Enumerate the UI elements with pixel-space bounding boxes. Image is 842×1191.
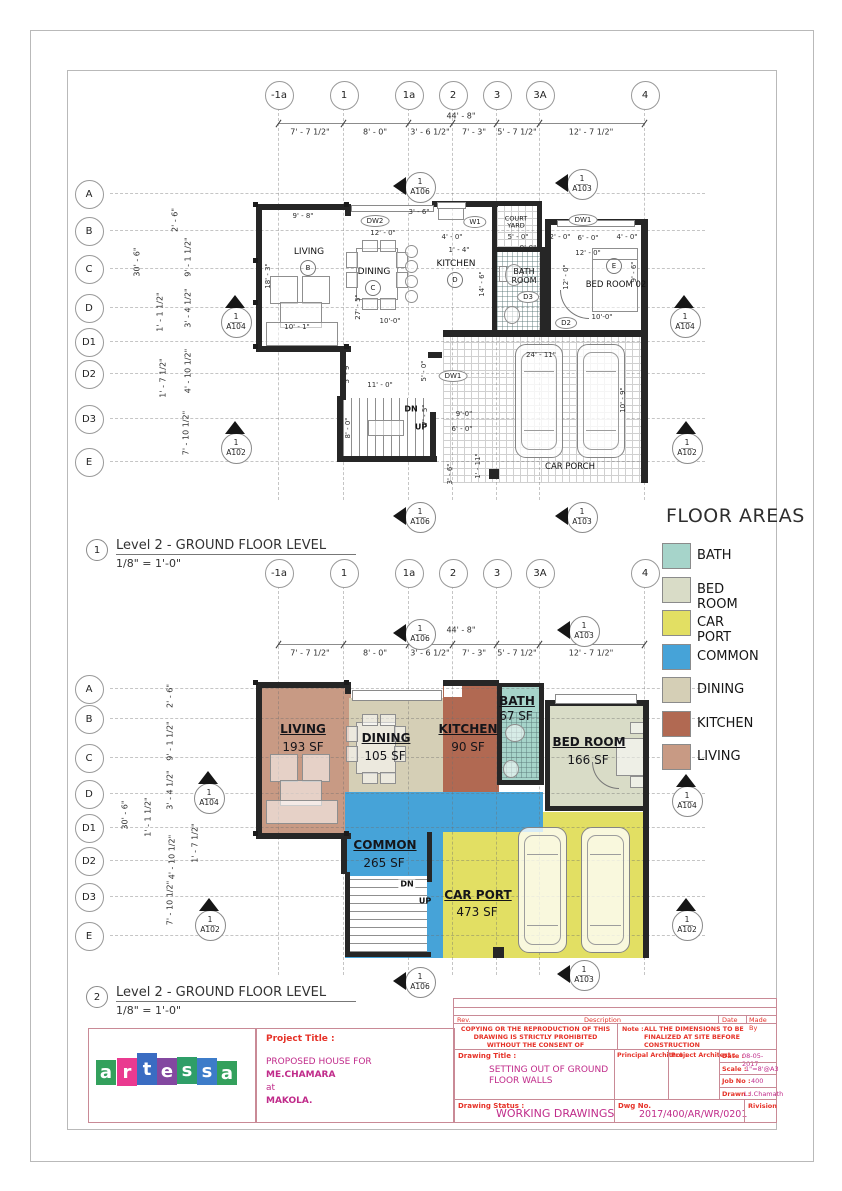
wall	[641, 337, 648, 483]
section-marker-arrow-icon	[225, 421, 245, 434]
car-rear-window	[590, 925, 621, 926]
segment-dim: 8' - 0"	[363, 649, 387, 658]
segment-dim: 7' - 3"	[462, 649, 486, 658]
grid-line-horizontal	[110, 688, 705, 689]
overall-width-dim: 44' - 8"	[446, 112, 475, 121]
furniture	[346, 252, 358, 268]
furniture	[266, 800, 338, 824]
section-marker: 1A104	[670, 307, 701, 338]
segment-dim: 5' - 7 1/2"	[497, 649, 536, 658]
interior-dim: 10'-0"	[379, 317, 400, 325]
section-marker-arrow-icon	[393, 972, 406, 990]
section-marker-sheet: A106	[410, 635, 429, 643]
legend-swatch	[662, 543, 691, 569]
plan1-caption-number: 1	[86, 539, 108, 561]
dimension-line	[278, 123, 644, 124]
segment-dim-left: 4' - 10 1/2"	[184, 349, 193, 394]
section-marker-circle: 1A103	[567, 502, 598, 533]
column-point	[344, 202, 349, 207]
wall	[545, 700, 550, 811]
legend-title: FLOOR AREAS	[666, 505, 805, 527]
segment-dim-left: 2' - 6"	[166, 684, 175, 708]
overall-height-dim: 30' - 6"	[133, 247, 142, 276]
interior-dim: 1' - 4"	[448, 246, 469, 254]
interior-dim: 14' - 6"	[478, 271, 486, 296]
car-body	[583, 352, 619, 450]
column-point	[253, 258, 258, 263]
opening-tag: DW1	[439, 370, 468, 382]
plan1-caption: 1 Level 2 - GROUND FLOOR LEVEL 1/8" = 1'…	[86, 538, 356, 570]
car	[515, 344, 563, 458]
section-marker-circle: 1A104	[194, 783, 225, 814]
furniture	[380, 772, 396, 784]
drawn-value: L.I.Chamath	[744, 1090, 783, 1098]
segment-dim: 3' - 6 1/2"	[410, 128, 449, 137]
plan1-caption-scale: 1/8" = 1'-0"	[116, 557, 356, 570]
column-point	[253, 831, 258, 836]
scale-value: 1"=8'@A3	[745, 1065, 779, 1073]
job-no-value: 400	[751, 1077, 763, 1085]
column-point	[344, 680, 349, 685]
interior-dim: 4' - 0"	[616, 233, 637, 241]
plan2-caption-scale: 1/8" = 1'-0"	[116, 1004, 356, 1017]
date-label: Date :	[722, 1052, 744, 1060]
segment-dim-left: 1' - 7 1/2"	[159, 358, 168, 397]
note-label: Note :	[622, 1026, 644, 1033]
grid-row-bubble: A	[75, 180, 104, 209]
grid-row-bubble: C	[75, 255, 104, 284]
grid-column-bubble: -1a	[265, 81, 294, 110]
room-tag-bedroom: E	[606, 258, 622, 274]
pantry-circle	[405, 260, 418, 273]
wall	[256, 204, 351, 210]
grid-column-bubble: 1a	[395, 559, 424, 588]
legend-swatch	[662, 577, 691, 603]
logo-letter: t	[137, 1053, 157, 1085]
segment-dim-left: 9' - 1 1/2"	[184, 237, 193, 276]
grid-row-bubble: D2	[75, 360, 104, 389]
section-marker-arrow-icon	[555, 174, 568, 192]
interior-dim: 2' - 0"	[549, 233, 570, 241]
segment-dim-left: 4' - 10 1/2"	[168, 835, 177, 880]
legend-swatch	[662, 711, 691, 737]
section-marker-circle: 1A106	[405, 172, 436, 203]
plan2-caption: 2 Level 2 - GROUND FLOOR LEVEL 1/8" = 1'…	[86, 985, 356, 1017]
wall	[256, 204, 262, 352]
grid-line-horizontal	[110, 341, 705, 342]
grid-column-bubble: 3A	[526, 559, 555, 588]
section-marker: 1A103	[569, 616, 600, 647]
section-marker-circle: 1A104	[670, 307, 701, 338]
section-marker-sheet: A104	[226, 323, 245, 331]
grid-row-bubble: D2	[75, 847, 104, 876]
grid-column-bubble: 2	[439, 81, 468, 110]
copyright-note: COPYING OR THE REPRODUCTION OF THIS DRAW…	[458, 1026, 613, 1051]
wall	[256, 682, 351, 688]
section-marker: 1A106	[405, 172, 436, 203]
grid-column-bubble: 4	[631, 81, 660, 110]
section-marker-circle: 1A102	[221, 433, 252, 464]
wall	[497, 780, 544, 785]
grid-column-bubble: 1	[330, 81, 359, 110]
section-marker: 1A103	[567, 169, 598, 200]
section-marker: 1A106	[405, 619, 436, 650]
grid-line-horizontal	[110, 230, 705, 231]
plan1-caption-title: Level 2 - GROUND FLOOR LEVEL	[116, 538, 356, 555]
interior-dim: 5' - 9"	[343, 362, 351, 383]
wall	[427, 832, 432, 882]
section-marker: 1A103	[567, 502, 598, 533]
stair-dn-label: DN	[404, 405, 417, 414]
segment-dim: 7' - 7 1/2"	[290, 128, 329, 137]
legend-swatch	[662, 677, 691, 703]
wall	[492, 201, 542, 206]
section-marker-sheet: A103	[574, 976, 593, 984]
segment-dim-left: 3' - 4 1/2"	[184, 288, 193, 327]
segment-dim-left: 1' - 1 1/2"	[156, 292, 165, 331]
wall	[643, 700, 649, 811]
project-title-line3: at	[266, 1083, 275, 1093]
logo-letter: a	[217, 1061, 237, 1085]
grid-column-bubble: 4	[631, 559, 660, 588]
car-body	[587, 835, 624, 945]
logo-letter: e	[157, 1058, 177, 1085]
wall	[256, 833, 351, 839]
room-name-dining: DINING	[362, 731, 411, 745]
interior-dim: 3' - 6"	[446, 463, 454, 484]
car-windshield	[524, 371, 554, 372]
project-title-label: Project Title :	[266, 1034, 335, 1044]
interior-dim: 3' - 6"	[408, 208, 429, 216]
segment-dim-left: 3' - 4 1/2"	[166, 770, 175, 809]
opening-tag: D3	[517, 291, 539, 303]
stair-dn-label: DN	[398, 880, 415, 889]
logo-letter: r	[117, 1058, 137, 1086]
legend-label: KITCHEN	[697, 716, 753, 731]
interior-dim: 9'-0"	[456, 410, 473, 418]
pantry-circle	[405, 290, 418, 303]
section-marker-arrow-icon	[674, 295, 694, 308]
segment-dim: 12' - 7 1/2"	[569, 649, 614, 658]
project-title-cell: Project Title : PROPOSED HOUSE FOR ME.CH…	[255, 1028, 455, 1123]
segment-dim-left: 1' - 7 1/2"	[191, 823, 200, 862]
wall	[443, 330, 648, 337]
car-rear-window	[524, 430, 554, 431]
column	[493, 947, 504, 958]
furniture	[380, 714, 396, 726]
door-arc	[560, 290, 589, 319]
interior-dim: 9' - 6"	[630, 261, 638, 282]
segment-dim: 3' - 6 1/2"	[410, 649, 449, 658]
sink	[504, 306, 520, 324]
room-label-living: LIVING	[294, 247, 324, 257]
room-tag-kitchen: D	[447, 272, 463, 288]
legend-swatch	[662, 610, 691, 636]
room-area-common: 265 SF	[363, 856, 404, 870]
section-marker-arrow-icon	[225, 295, 245, 308]
furniture	[356, 722, 396, 774]
section-marker: 1A106	[405, 967, 436, 998]
wall	[499, 683, 541, 687]
title-block: Rev. Description Date Made By COPYING OR…	[453, 998, 777, 1123]
toilet	[505, 724, 525, 742]
furniture	[362, 714, 378, 726]
car	[581, 827, 630, 953]
section-marker-sheet: A103	[572, 518, 591, 526]
furniture	[380, 240, 396, 252]
scale-label: Scale :	[722, 1065, 746, 1073]
legend-swatch	[662, 744, 691, 770]
room-area-bath: 67 SF	[499, 709, 533, 723]
section-marker-arrow-icon	[676, 774, 696, 787]
grid-column-bubble: 1a	[395, 81, 424, 110]
room-label-bathroom: BATH ROOM	[504, 267, 544, 285]
furniture	[270, 276, 298, 304]
opening-tag: DW1	[569, 214, 598, 226]
car-rear-window	[527, 925, 558, 926]
car	[518, 827, 567, 953]
furniture	[362, 298, 378, 310]
wall	[492, 201, 497, 337]
room-label-dining: DINING	[358, 267, 391, 277]
segment-dim-left: 1' - 1 1/2"	[144, 797, 153, 836]
wall	[345, 872, 350, 957]
window	[555, 694, 637, 704]
interior-dim: 12' - 0"	[562, 264, 570, 289]
note-text: ALL THE DIMENSIONS TO BE FINALIZED AT SI…	[644, 1026, 769, 1051]
project-title-line2: ME.CHAMARA	[266, 1070, 335, 1080]
grid-row-bubble: D	[75, 294, 104, 323]
car-rear-window	[586, 430, 616, 431]
section-marker-sheet: A103	[574, 632, 593, 640]
room-fill-common	[443, 792, 543, 832]
interior-dim: 9' - 8"	[292, 212, 313, 220]
overall-height-dim: 30' - 6"	[121, 800, 130, 829]
legend-swatch	[662, 644, 691, 670]
logo-letter: a	[96, 1060, 116, 1085]
section-marker-sheet: A103	[572, 185, 591, 193]
grid-row-bubble: D	[75, 780, 104, 809]
wall	[428, 352, 442, 358]
section-marker-circle: 1A104	[221, 307, 252, 338]
legend-label: COMMON	[697, 649, 759, 664]
project-title-line4: MAKOLA.	[266, 1096, 312, 1106]
section-marker-sheet: A102	[226, 449, 245, 457]
interior-dim: 6' - 0"	[577, 234, 598, 242]
dwg-no-value: 2017/400/AR/WR/0201	[639, 1109, 747, 1120]
section-marker-sheet: A104	[199, 799, 218, 807]
segment-dim-left: 7' - 10 1/2"	[182, 411, 191, 456]
revision-label: Rivision	[748, 1102, 777, 1110]
car-windshield	[527, 854, 558, 855]
drawing-sheet: -1a11a233A4-1a11a233A4ABCDD1D2D3EABCDD1D…	[0, 0, 842, 1191]
overall-width-dim: 44' - 8"	[446, 626, 475, 635]
section-marker-arrow-icon	[393, 177, 406, 195]
section-marker: 1A102	[195, 910, 226, 941]
section-marker-arrow-icon	[557, 621, 570, 639]
car-windshield	[586, 371, 616, 372]
section-marker-circle: 1A102	[672, 433, 703, 464]
pantry-circle	[405, 275, 418, 288]
section-marker: 1A106	[405, 502, 436, 533]
opening-tag: D2	[555, 317, 577, 329]
room-label-kitchen: KITCHEN	[437, 259, 476, 269]
column-point	[253, 344, 258, 349]
grid-line-horizontal	[110, 718, 705, 719]
section-marker: 1A104	[194, 783, 225, 814]
room-name-kitchen: KITCHEN	[438, 722, 497, 736]
grid-row-bubble: B	[75, 705, 104, 734]
furniture	[380, 298, 396, 310]
furniture	[362, 240, 378, 252]
section-marker-arrow-icon	[393, 507, 406, 525]
section-marker-sheet: A102	[200, 926, 219, 934]
legend-label: BATH	[697, 548, 732, 563]
grid-line-vertical	[278, 108, 279, 500]
room-name-common: COMMON	[353, 838, 416, 852]
interior-dim: 10' - 1"	[284, 323, 309, 331]
furniture	[302, 276, 330, 304]
legend-label: LIVING	[697, 749, 741, 764]
grid-row-bubble: D1	[75, 814, 104, 843]
section-marker-arrow-icon	[199, 898, 219, 911]
section-marker-circle: 1A103	[569, 960, 600, 991]
interior-dim: 6' - 0"	[451, 425, 472, 433]
section-marker-arrow-icon	[676, 421, 696, 434]
section-marker-sheet: A106	[410, 518, 429, 526]
project-title-line1: PROPOSED HOUSE FOR	[266, 1057, 372, 1067]
section-marker-sheet: A106	[410, 983, 429, 991]
furniture	[270, 754, 298, 782]
room-name-car-port: CAR PORT	[444, 888, 511, 902]
section-marker: 1A102	[221, 433, 252, 464]
wall	[430, 412, 436, 462]
section-marker-circle: 1A104	[672, 786, 703, 817]
wall	[641, 219, 648, 337]
grid-row-bubble: D1	[75, 328, 104, 357]
section-marker-circle: 1A106	[405, 967, 436, 998]
interior-dim: 1' - 11"	[474, 453, 482, 478]
car-body	[524, 835, 561, 945]
section-marker-circle: 1A102	[195, 910, 226, 941]
section-marker-arrow-icon	[393, 624, 406, 642]
wall	[341, 838, 347, 874]
furniture	[346, 746, 358, 762]
segment-dim: 8' - 0"	[363, 128, 387, 137]
grid-row-bubble: E	[75, 448, 104, 477]
section-marker-circle: 1A103	[567, 169, 598, 200]
section-marker: 1A102	[672, 910, 703, 941]
interior-dim: 12' - 0"	[575, 249, 600, 257]
wall	[537, 201, 542, 252]
car-body	[521, 352, 557, 450]
legend-label: DINING	[697, 682, 744, 697]
grid-line-vertical	[452, 108, 453, 500]
room-area-kitchen: 90 SF	[451, 740, 485, 754]
logo-letter: s	[197, 1058, 217, 1085]
room-label-bedroom: BED ROOM 02	[585, 281, 647, 291]
wall	[256, 346, 351, 352]
plan2-caption-title: Level 2 - GROUND FLOOR LEVEL	[116, 985, 356, 1002]
room-name-bath: BATH	[499, 694, 535, 708]
segment-dim: 7' - 7 1/2"	[290, 649, 329, 658]
sink	[503, 760, 519, 778]
grid-row-bubble: E	[75, 922, 104, 951]
room-name-living: LIVING	[280, 722, 326, 736]
interior-dim: 12' - 0"	[370, 229, 395, 237]
grid-row-bubble: D3	[75, 883, 104, 912]
interior-dim: 18' - 3"	[264, 263, 272, 288]
furniture	[302, 754, 330, 782]
interior-dim: 9'-0"	[520, 244, 537, 252]
segment-dim: 12' - 7 1/2"	[569, 128, 614, 137]
car-windshield	[590, 854, 621, 855]
column-point	[253, 680, 258, 685]
grid-row-bubble: C	[75, 744, 104, 773]
car	[577, 344, 625, 458]
section-marker-sheet: A106	[410, 188, 429, 196]
interior-dim: 5' - 0"	[420, 360, 428, 381]
room-label-courtyard: COURT YARD	[500, 216, 532, 231]
section-marker-circle: 1A106	[405, 619, 436, 650]
section-marker-arrow-icon	[557, 965, 570, 983]
wall	[443, 680, 499, 686]
wall	[643, 811, 649, 958]
segment-dim-left: 2' - 6"	[171, 208, 180, 232]
window	[437, 202, 466, 209]
wall	[545, 806, 649, 811]
room-tag-dining: C	[365, 280, 381, 296]
wall	[539, 683, 544, 785]
section-marker: 1A102	[672, 433, 703, 464]
grid-column-bubble: 3	[483, 81, 512, 110]
room-tag-living: B	[300, 260, 316, 276]
grid-row-bubble: A	[75, 675, 104, 704]
section-marker-circle: 1A106	[405, 502, 436, 533]
section-marker: 1A103	[569, 960, 600, 991]
job-no-label: Job No :	[722, 1077, 751, 1085]
section-marker-arrow-icon	[676, 898, 696, 911]
section-marker-sheet: A104	[677, 802, 696, 810]
section-marker: 1A104	[221, 307, 252, 338]
segment-dim: 7' - 3"	[462, 128, 486, 137]
interior-dim: 5' - 0"	[507, 233, 528, 241]
interior-dim: 11' - 0"	[367, 381, 392, 389]
interior-dim: 27' - 5"	[354, 294, 362, 319]
interior-dim: 10'-0"	[591, 313, 612, 321]
segment-dim-left: 9' - 1 1/2"	[166, 721, 175, 760]
column-point	[253, 202, 258, 207]
drawing-status-value: WORKING DRAWINGS	[496, 1107, 614, 1120]
column-point	[253, 300, 258, 305]
furniture	[346, 726, 358, 742]
section-marker-circle: 1A102	[672, 910, 703, 941]
room-area-dining: 105 SF	[364, 749, 405, 763]
section-marker: 1A104	[672, 786, 703, 817]
column-point	[344, 344, 349, 349]
interior-dim: 8' - 0"	[344, 417, 352, 438]
drawing-title-value: SETTING OUT OF GROUND FLOOR WALLS	[489, 1065, 609, 1088]
segment-dim-left: 7' - 10 1/2"	[166, 881, 175, 926]
window	[352, 690, 442, 701]
stair-landing	[368, 420, 404, 436]
interior-dim: 4' - 0"	[441, 233, 462, 241]
wall	[256, 682, 262, 839]
plan2-caption-number: 2	[86, 986, 108, 1008]
wall	[337, 396, 343, 462]
pantry-circle	[405, 245, 418, 258]
room-area-bed-room: 166 SF	[567, 753, 608, 767]
